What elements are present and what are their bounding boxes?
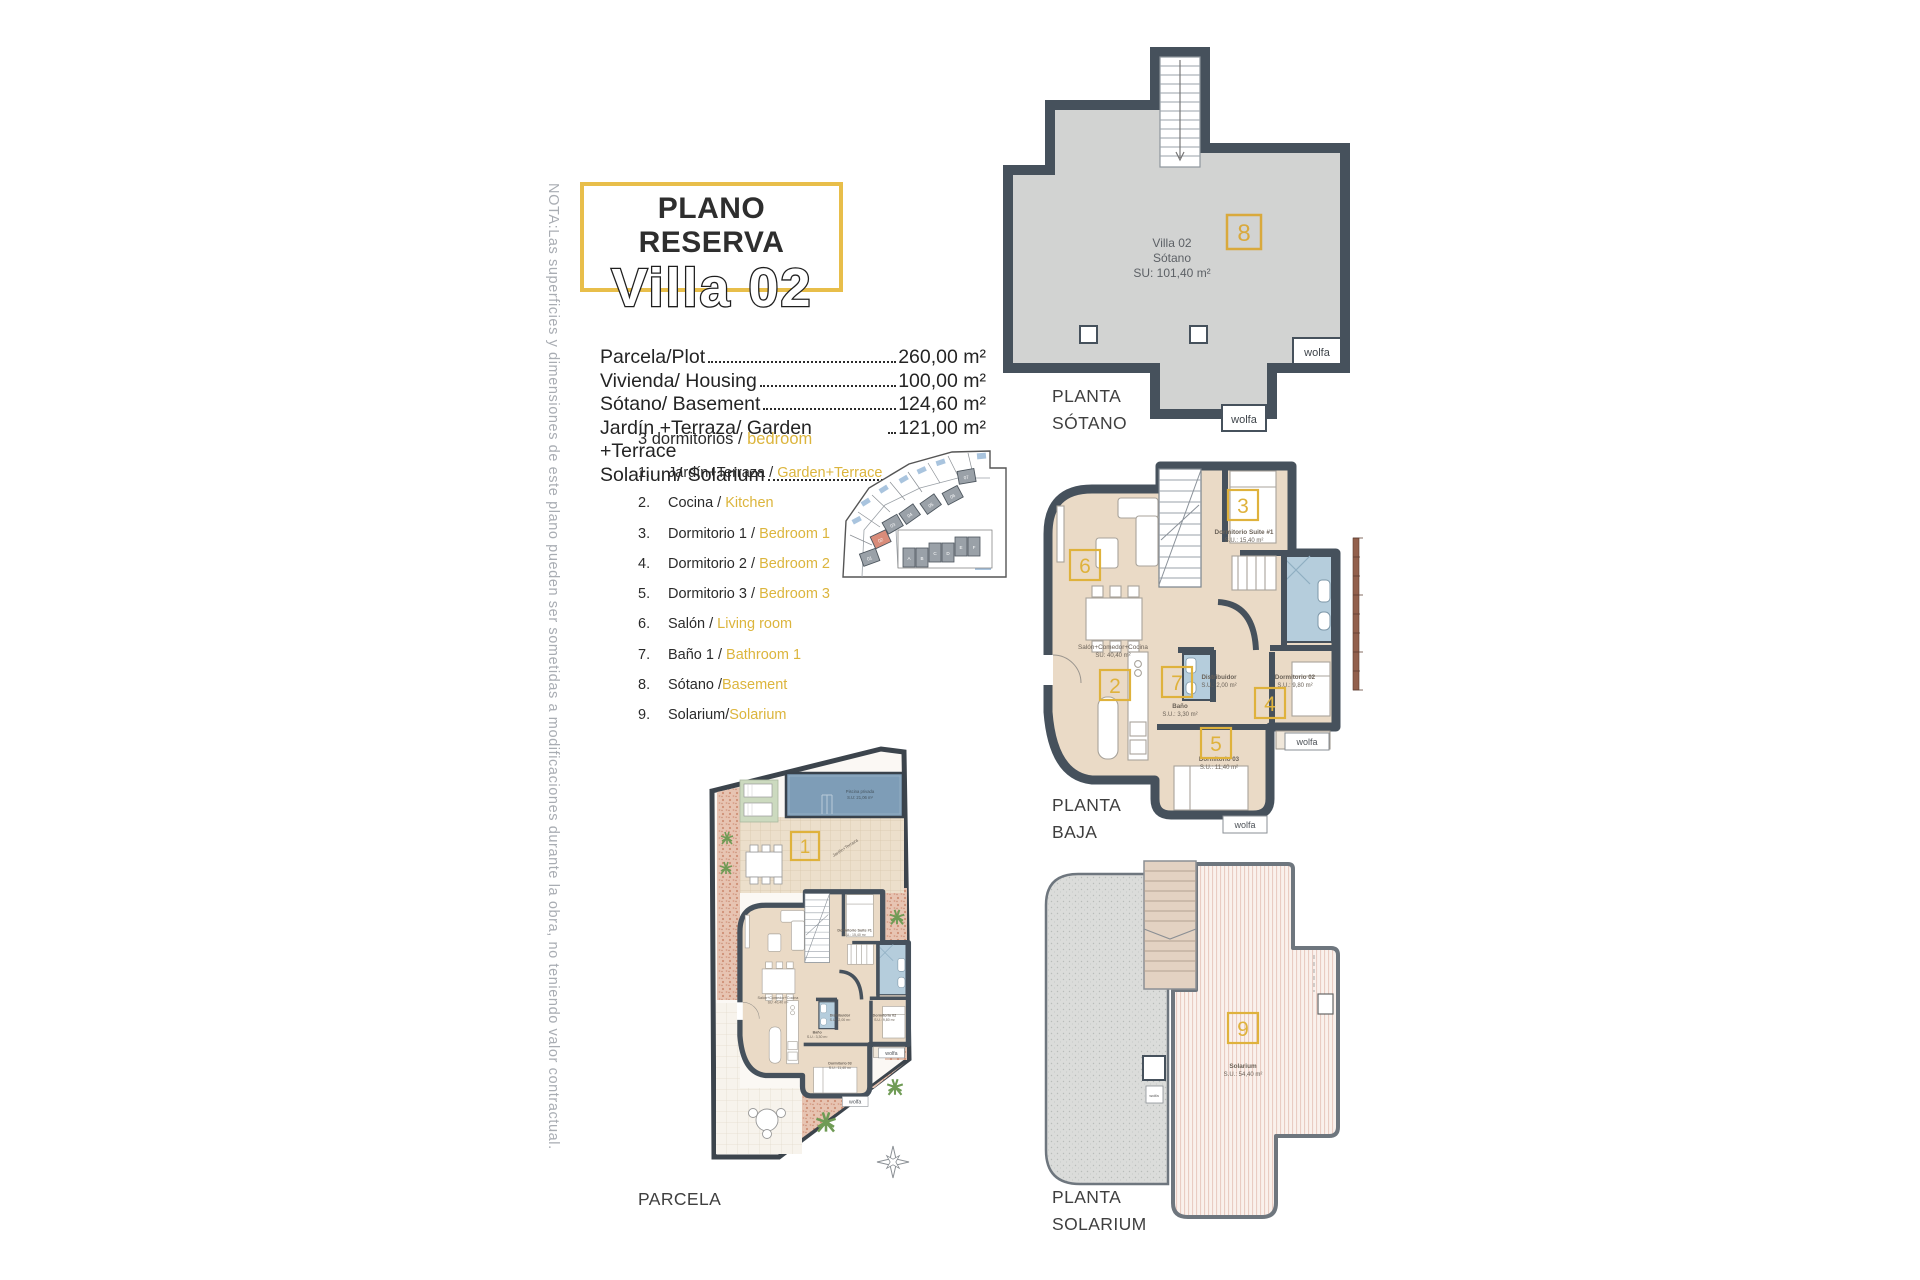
svg-text:5: 5 <box>1210 733 1222 756</box>
svg-text:Sótano: Sótano <box>1153 251 1191 265</box>
legend-item: 5.Dormitorio 3 / Bedroom 3 <box>638 586 898 603</box>
title-box: PLANO RESERVA Villa 02 <box>580 182 843 292</box>
roof-hatch <box>1143 1056 1165 1080</box>
svg-text:SU: 101,40 m²: SU: 101,40 m² <box>1133 266 1210 280</box>
area-row: Sótano/ Basement124,60 m² <box>600 393 986 417</box>
svg-text:2: 2 <box>1109 675 1121 698</box>
svg-text:Villa 02: Villa 02 <box>611 260 812 318</box>
area-label: Sótano/ Basement <box>600 393 760 417</box>
svg-text:1: 1 <box>800 837 811 858</box>
vent-square <box>1190 326 1207 343</box>
legend-item: 7.Baño 1 / Bathroom 1 <box>638 647 898 664</box>
area-label: Parcela/Plot <box>600 346 705 370</box>
access-door <box>1318 994 1333 1014</box>
disclaimer-note: NOTA:Las superficies y dimensiones de es… <box>545 183 561 1068</box>
plan-kicker: PLANO RESERVA <box>584 192 839 260</box>
svg-text:F: F <box>973 545 976 550</box>
dot-leader <box>763 408 896 410</box>
area-value: 260,00 m² <box>898 346 986 370</box>
parcela-plan-svg: Piscina privada S.U: 21,06 m² Jardín+Ter… <box>700 738 945 1188</box>
lawn <box>740 780 778 822</box>
sotano-stairs <box>1160 57 1200 167</box>
area-value: 124,60 m² <box>898 393 986 417</box>
parcela-plan-label: PARCELA <box>638 1186 721 1213</box>
area-label: Vivienda/ Housing <box>600 370 757 394</box>
baja-plan-label: PLANTABAJA <box>1052 792 1121 846</box>
solarium-plan-label: PLANTASOLARIUM <box>1052 1184 1147 1238</box>
svg-text:S.U.: 54,40 m²: S.U.: 54,40 m² <box>1224 1072 1263 1078</box>
svg-text:B: B <box>920 556 923 561</box>
scale-ruler <box>1353 538 1363 690</box>
legend-item: 9.Solarium/Solarium <box>638 707 898 724</box>
wolfa-tag: wolfa <box>1222 405 1266 431</box>
svg-text:4: 4 <box>1264 693 1276 716</box>
dot-leader <box>760 385 896 387</box>
wolfa-tag: wolfa <box>1293 338 1341 364</box>
pool-label: Piscina privada <box>846 789 875 794</box>
site-row-houses: A B C D E F <box>898 530 992 568</box>
legend-heading: 3 dormitorios / bedroom <box>638 430 898 449</box>
villa-title: Villa 02 <box>588 260 835 320</box>
svg-text:9: 9 <box>1237 1018 1249 1041</box>
svg-text:E: E <box>959 545 962 550</box>
legend-item: 6.Salón / Living room <box>638 616 898 633</box>
svg-text:Solarium: Solarium <box>1229 1063 1257 1070</box>
outdoor-dining <box>746 845 782 884</box>
svg-text:7: 7 <box>1171 672 1183 695</box>
terracotta-left <box>717 787 740 1000</box>
svg-text:6: 6 <box>1079 555 1091 578</box>
area-value: 100,00 m² <box>898 370 986 394</box>
sotano-plan-svg: wolfa wolfa Villa 02 Sótano SU: 101,40 m… <box>995 40 1360 440</box>
compass-star <box>877 1146 909 1178</box>
legend-item: 8.Sótano /Basement <box>638 677 898 694</box>
area-row: Vivienda/ Housing100,00 m² <box>600 370 986 394</box>
svg-text:8: 8 <box>1237 220 1250 247</box>
area-value: 121,00 m² <box>898 417 986 441</box>
pool: Piscina privada S.U: 21,06 m² <box>786 773 903 817</box>
svg-text:Villa 02: Villa 02 <box>1152 236 1191 250</box>
site-map-svg: 01 02 03 04 05 06 07 A B C D E F <box>838 448 1013 583</box>
solarium-deck <box>1173 864 1338 1217</box>
svg-text:wolfa: wolfa <box>1149 1093 1159 1098</box>
area-row: Parcela/Plot260,00 m² <box>600 346 986 370</box>
svg-text:3: 3 <box>1237 495 1249 518</box>
solarium-stairs <box>1144 861 1196 989</box>
solarium-plan-svg: wolfa 9 Solarium S.U.: 54,40 m² <box>1040 852 1445 1227</box>
wolfa-tag: wolfa <box>1146 1086 1163 1103</box>
plan-sheet: NOTA:Las superficies y dimensiones de es… <box>0 0 1920 1280</box>
svg-text:wolfa: wolfa <box>1303 347 1331 359</box>
pool-area: S.U: 21,06 m² <box>847 795 873 800</box>
vent-square <box>1080 326 1097 343</box>
sotano-plan-label: PLANTASÓTANO <box>1052 383 1127 437</box>
svg-text:wolfa: wolfa <box>1230 414 1258 426</box>
baja-plan-svg: 6 3 2 7 4 5 <box>1035 455 1370 845</box>
dot-leader <box>708 361 896 363</box>
